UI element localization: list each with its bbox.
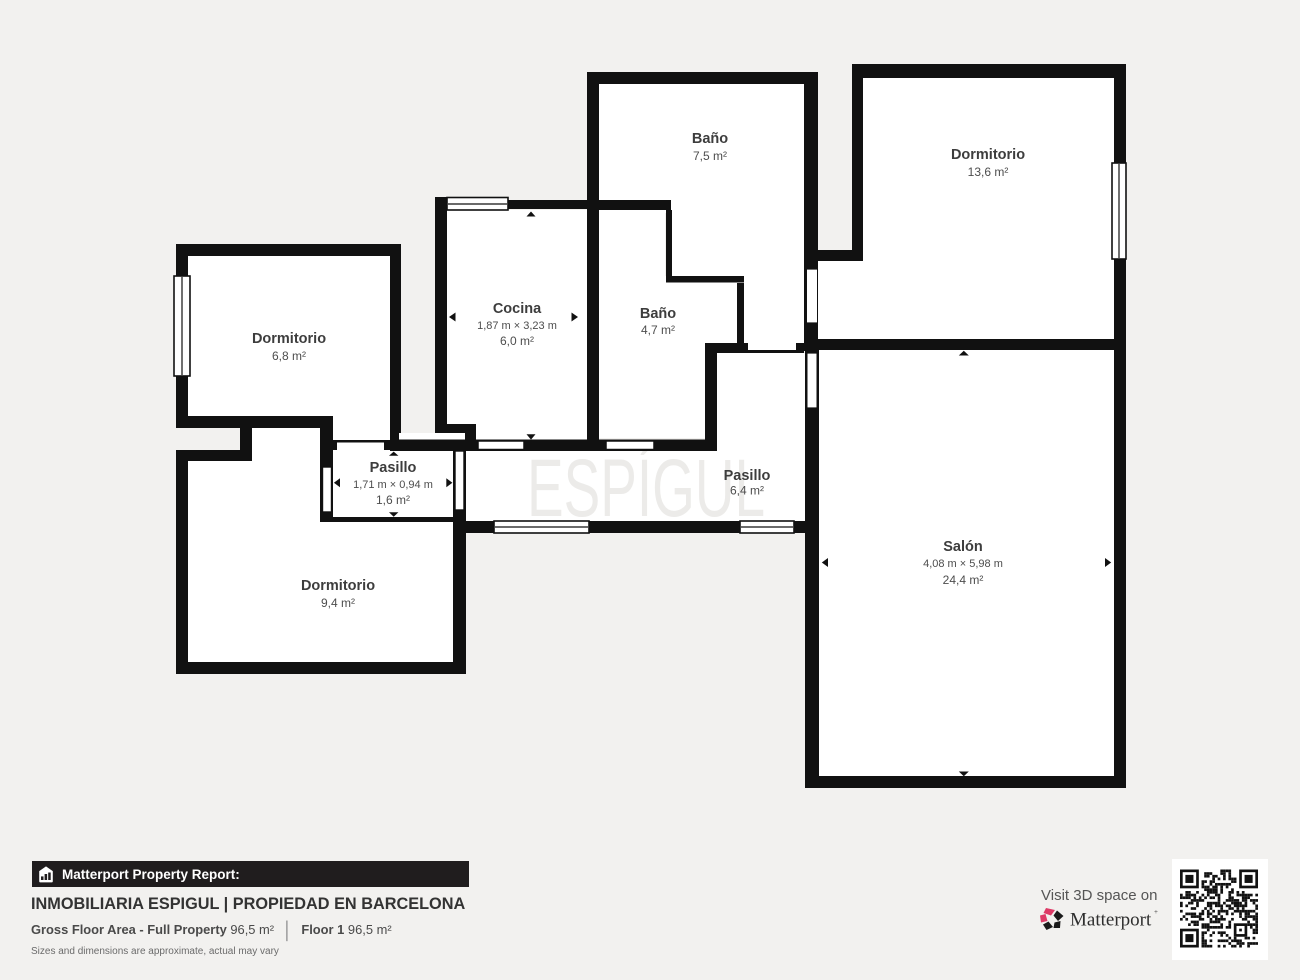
svg-text:1,71 m × 0,94 m: 1,71 m × 0,94 m	[353, 479, 433, 491]
svg-text:9,4 m²: 9,4 m²	[321, 596, 355, 610]
svg-text:Baño: Baño	[640, 306, 676, 322]
svg-text:Cocina: Cocina	[493, 301, 542, 317]
svg-text:Dormitorio: Dormitorio	[301, 578, 375, 594]
svg-text:Matterport: Matterport	[1070, 910, 1152, 931]
svg-text:1,87 m × 3,23 m: 1,87 m × 3,23 m	[477, 320, 557, 332]
svg-text:4,08 m × 5,98 m: 4,08 m × 5,98 m	[923, 558, 1003, 570]
svg-text:6,4 m²: 6,4 m²	[730, 484, 764, 498]
svg-text:4,7 m²: 4,7 m²	[641, 323, 675, 337]
svg-text:7,5 m²: 7,5 m²	[693, 149, 727, 163]
svg-text:Pasillo: Pasillo	[724, 468, 771, 484]
svg-text:6,8 m²: 6,8 m²	[272, 349, 306, 363]
svg-text:24,4 m²: 24,4 m²	[943, 573, 984, 587]
svg-text:Baño: Baño	[692, 131, 728, 147]
svg-text:Pasillo: Pasillo	[370, 460, 417, 476]
svg-text:13,6 m²: 13,6 m²	[968, 165, 1009, 179]
svg-text:1,6 m²: 1,6 m²	[376, 493, 410, 507]
svg-text:Dormitorio: Dormitorio	[252, 331, 326, 347]
svg-text:Salón: Salón	[943, 539, 982, 555]
svg-text:Dormitorio: Dormitorio	[951, 147, 1025, 163]
svg-text:6,0 m²: 6,0 m²	[500, 334, 534, 348]
svg-text:+: +	[1154, 908, 1158, 916]
